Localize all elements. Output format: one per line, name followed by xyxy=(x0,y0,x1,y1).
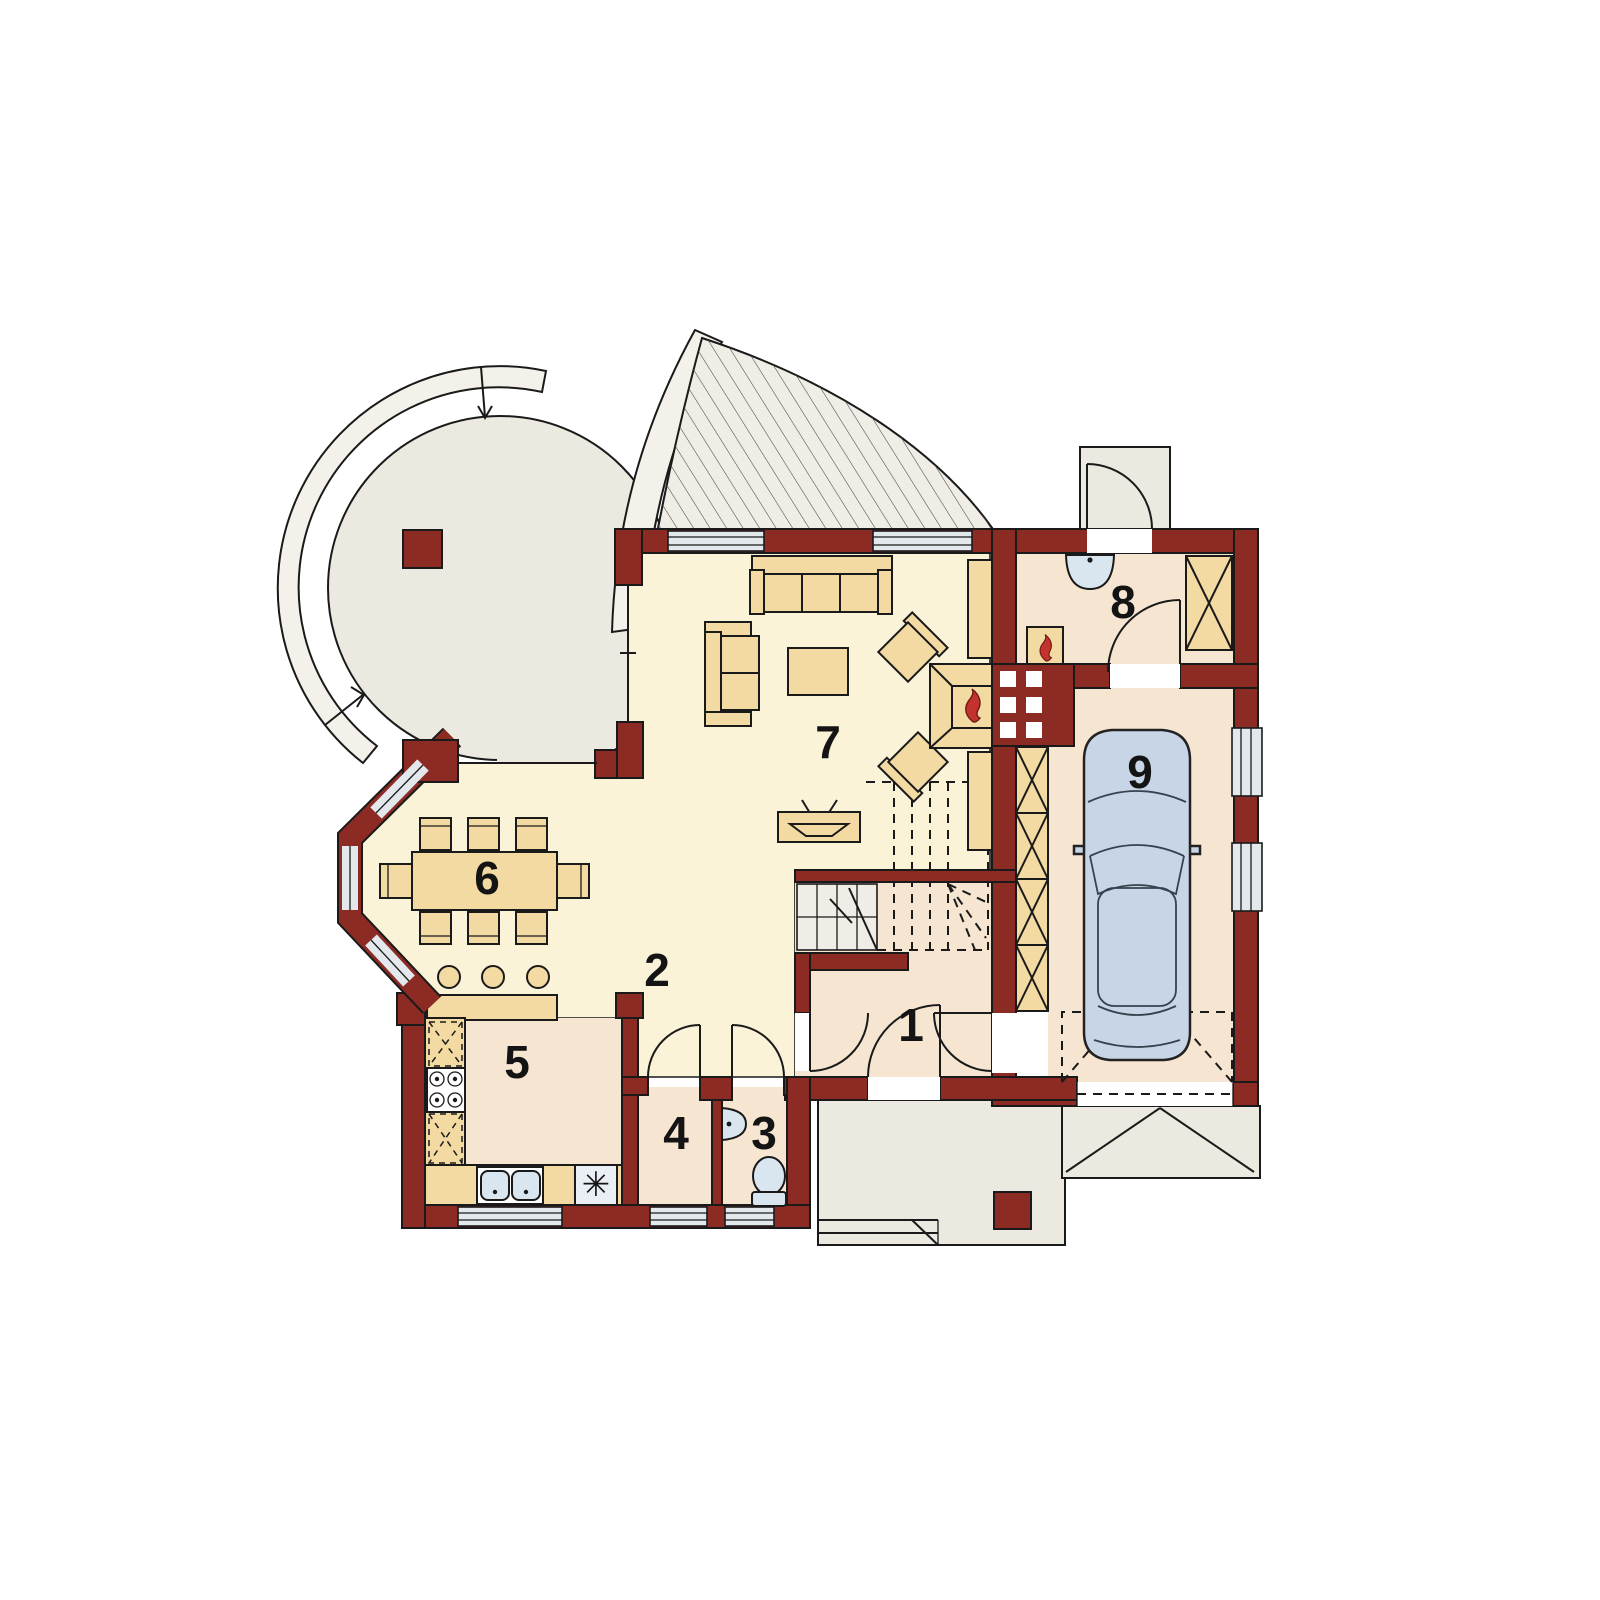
terrace-pillar xyxy=(617,722,643,778)
wall-hall1-left xyxy=(795,953,810,1013)
chimney xyxy=(992,664,1074,746)
window xyxy=(873,531,972,551)
window xyxy=(668,531,764,551)
room-label-3: 3 xyxy=(751,1107,777,1159)
fireplace xyxy=(930,664,992,748)
wall-room8-garage xyxy=(1074,664,1110,688)
sofa-armrest xyxy=(750,570,764,614)
porch-column xyxy=(994,1192,1031,1229)
room-label-5: 5 xyxy=(504,1036,530,1088)
sofa-back xyxy=(752,556,892,574)
wall-right xyxy=(1234,529,1258,1106)
window xyxy=(650,1207,707,1226)
stove xyxy=(427,1068,465,1112)
sofa-cushion xyxy=(840,574,878,612)
wall-room3-room4 xyxy=(712,1100,722,1205)
freezer-symbol: ✳ xyxy=(582,1165,611,1205)
window xyxy=(458,1207,562,1226)
window xyxy=(1232,843,1262,911)
wall-pier xyxy=(700,1077,732,1100)
garage-apron xyxy=(1062,1106,1260,1178)
wall-shelf xyxy=(968,752,992,850)
wall-room3-east xyxy=(787,1077,810,1207)
window xyxy=(725,1207,774,1226)
bar-stool xyxy=(438,966,460,988)
garage-shelving xyxy=(1016,747,1048,1011)
wall-under-stairs xyxy=(795,953,908,970)
room-label-1: 1 xyxy=(898,999,924,1051)
wardrobe xyxy=(1186,556,1232,650)
coffee-table xyxy=(788,648,848,695)
terrace-pillar xyxy=(595,750,617,778)
terrace-floor-corner xyxy=(497,585,628,764)
sofa-cushion xyxy=(764,574,802,612)
boiler xyxy=(1027,627,1063,669)
kitchen-bar-counter xyxy=(427,995,557,1020)
terrace xyxy=(278,366,672,764)
room-label-4: 4 xyxy=(663,1107,689,1159)
wall-garage-bottom xyxy=(1233,1082,1258,1106)
freezer: ✳ xyxy=(575,1165,617,1205)
room-label-8: 8 xyxy=(1110,576,1136,628)
sofa-armrest xyxy=(878,570,892,614)
bar-stool xyxy=(527,966,549,988)
sofa-cushion xyxy=(802,574,840,612)
kitchen-sink xyxy=(477,1167,543,1204)
wall-living-room8 xyxy=(992,529,1016,664)
wall-corner xyxy=(615,529,642,585)
loveseat-back xyxy=(705,632,721,712)
window xyxy=(1232,728,1262,796)
room-label-9: 9 xyxy=(1127,746,1153,798)
loveseat-armrest xyxy=(705,712,751,726)
bar-stool xyxy=(482,966,504,988)
room-label-2: 2 xyxy=(644,944,670,996)
wall-hall1-bottom xyxy=(940,1077,1077,1100)
terrace-pillar xyxy=(403,530,442,568)
floor-plan-page: ✳ xyxy=(0,0,1600,1600)
loveseat-cushion xyxy=(721,636,759,673)
stair-rail-wall xyxy=(795,870,1016,882)
room-label-7: 7 xyxy=(815,716,841,768)
wall-pier xyxy=(616,993,643,1018)
loveseat-cushion xyxy=(721,673,759,710)
room-label-6: 6 xyxy=(474,852,500,904)
wall-kitchen-west xyxy=(402,1000,425,1228)
garage-door xyxy=(1077,1082,1233,1106)
floor-plan: ✳ xyxy=(0,0,1600,1600)
wall-kitchen-east xyxy=(622,995,638,1207)
wall-room8-garage xyxy=(1180,664,1258,688)
wall-pier xyxy=(622,1077,648,1095)
wall-shelf xyxy=(968,560,992,658)
toilet xyxy=(752,1157,786,1206)
back-door-landing xyxy=(1080,447,1170,529)
